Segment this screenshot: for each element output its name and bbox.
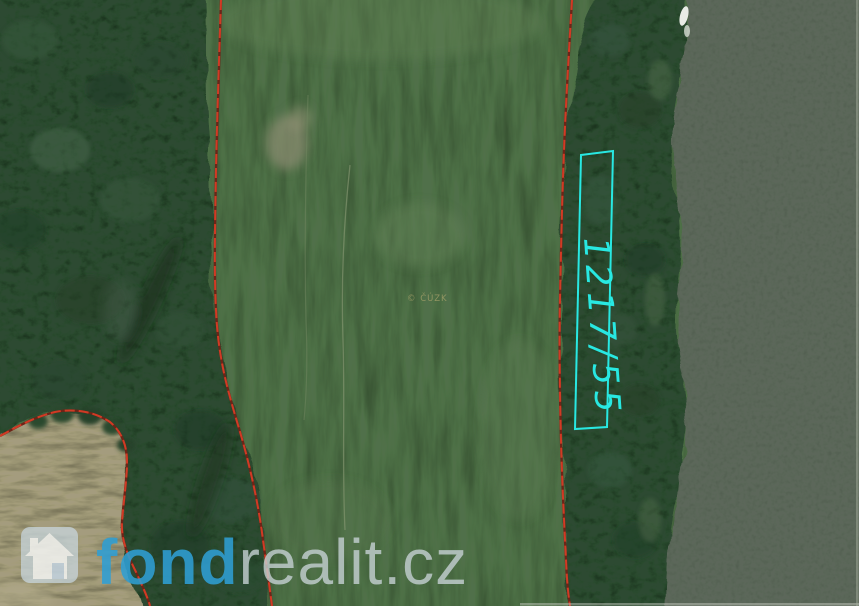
- house-icon: [21, 527, 78, 583]
- brand-text-rest: realit.cz: [239, 526, 469, 598]
- satellite-map[interactable]: © ČÚZK 1217/55 fondrealit.cz: [0, 0, 859, 606]
- brand-text: fondrealit.cz: [96, 526, 468, 598]
- house-door: [52, 563, 64, 579]
- water: [667, 0, 859, 606]
- cuzk-copyright: © ČÚZK: [407, 292, 448, 304]
- brand-text-bold: fond: [96, 526, 239, 598]
